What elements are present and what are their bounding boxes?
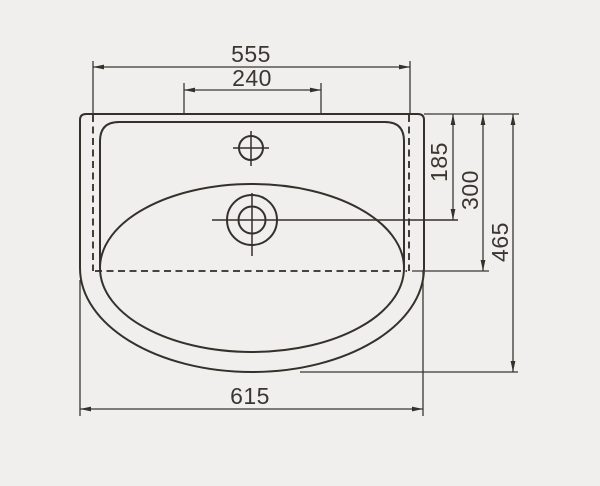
faucet-hole (233, 131, 269, 166)
arrowhead-down (511, 361, 516, 372)
technical-drawing-canvas: 555 240 185 300 (0, 0, 600, 486)
arrowhead-left (93, 65, 104, 70)
arrowhead-down (481, 260, 486, 271)
arrowhead-right (399, 65, 410, 70)
arrowhead-up (511, 114, 516, 125)
dim-label-tap-platform-width: 240 (232, 65, 272, 91)
arrowhead-right (412, 407, 423, 412)
dim-label-overall-depth: 465 (487, 222, 513, 262)
dim-label-overall-width: 615 (230, 383, 270, 409)
arrowhead-left (80, 407, 91, 412)
dim-label-top-to-drain: 185 (426, 142, 452, 182)
dimension-tap-platform-width: 240 (184, 65, 321, 114)
arrowhead-up (451, 114, 456, 125)
arrowhead-up (481, 114, 486, 125)
arrowhead-left (184, 88, 195, 93)
dim-label-top-to-ledge: 300 (457, 170, 483, 210)
arrowhead-down (451, 209, 456, 220)
arrowhead-right (310, 88, 321, 93)
dim-label-top-width: 555 (231, 41, 271, 67)
washbasin-technical-drawing: 555 240 185 300 (0, 0, 600, 486)
drain-hole (212, 193, 458, 256)
